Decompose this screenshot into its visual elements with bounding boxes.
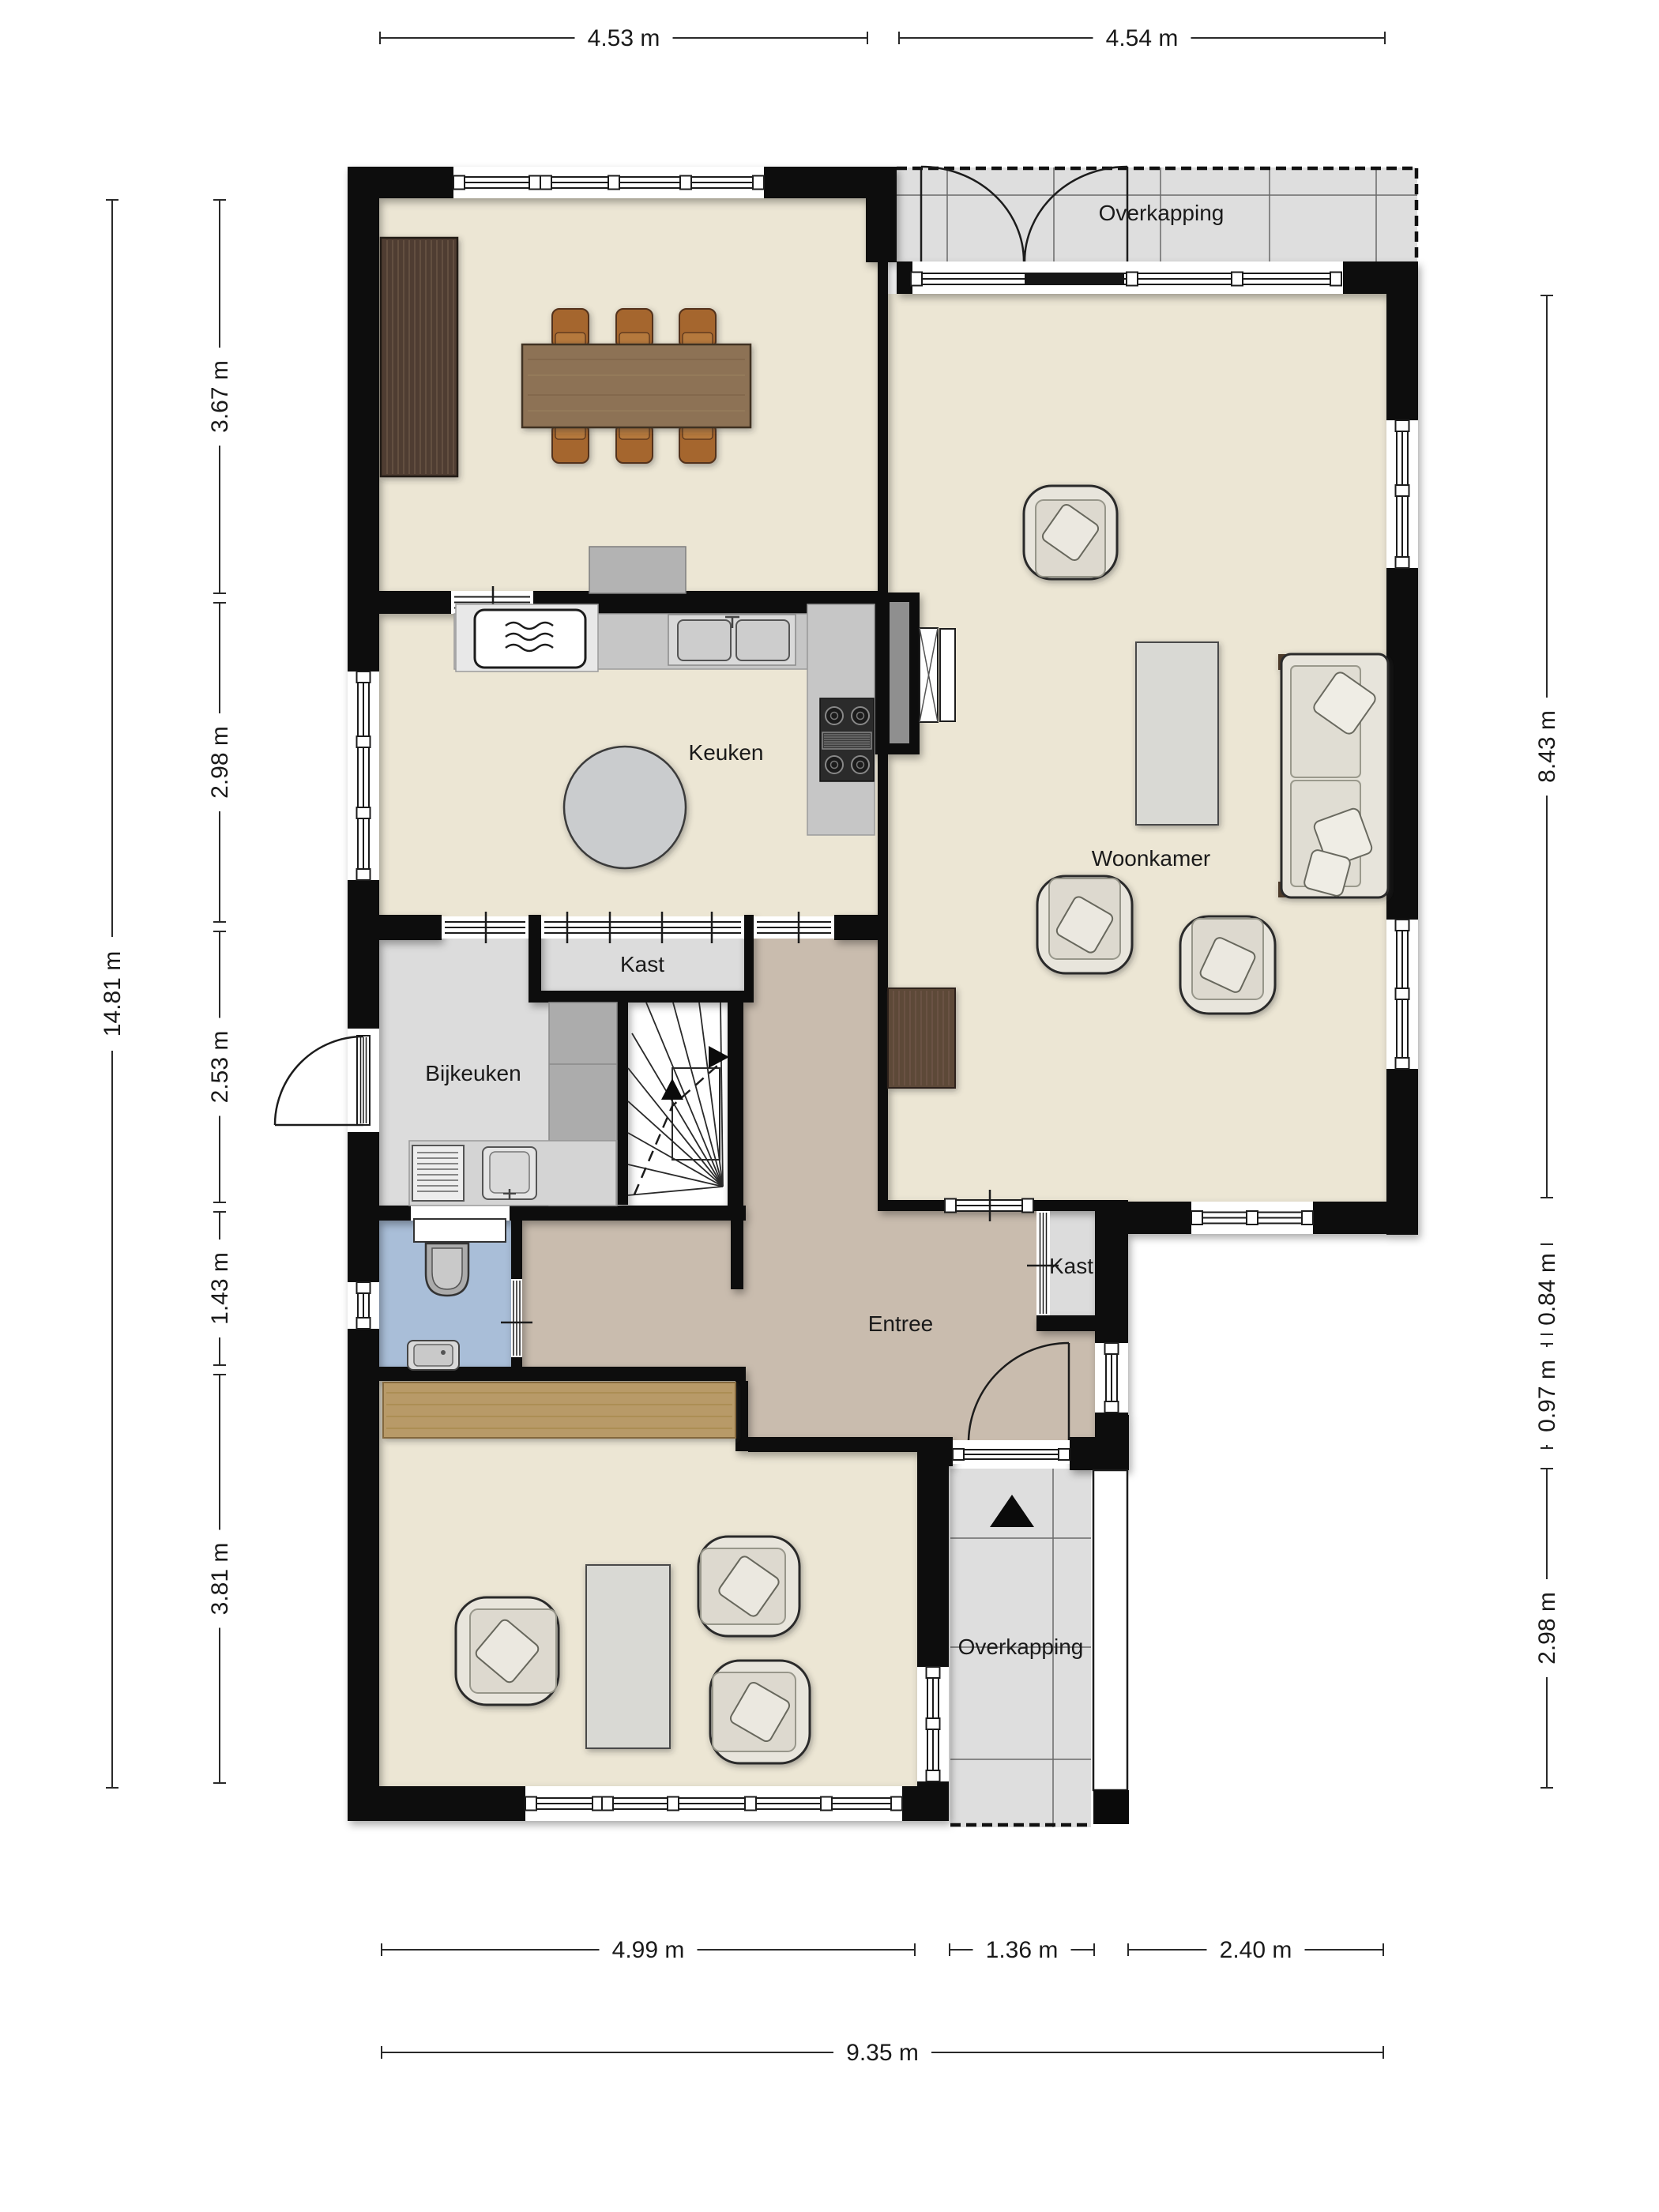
svg-text:2.98 m: 2.98 m — [207, 726, 233, 799]
svg-text:0.84 m: 0.84 m — [1534, 1253, 1560, 1326]
svg-text:14.81 m: 14.81 m — [100, 951, 126, 1036]
svg-text:3.67 m: 3.67 m — [207, 360, 233, 433]
svg-text:Bijkeuken: Bijkeuken — [425, 1061, 521, 1085]
svg-text:Kast: Kast — [1049, 1254, 1093, 1278]
svg-text:2.98 m: 2.98 m — [1534, 1592, 1560, 1665]
svg-text:1.36 m: 1.36 m — [986, 1937, 1059, 1963]
svg-text:Keuken: Keuken — [689, 740, 764, 765]
svg-text:2.53 m: 2.53 m — [207, 1031, 233, 1104]
svg-text:Overkapping: Overkapping — [1099, 201, 1224, 225]
svg-text:4.53 m: 4.53 m — [588, 25, 660, 51]
svg-text:4.99 m: 4.99 m — [612, 1937, 685, 1963]
svg-text:Overkapping: Overkapping — [958, 1635, 1084, 1659]
svg-text:2.40 m: 2.40 m — [1220, 1937, 1292, 1963]
svg-text:9.35 m: 9.35 m — [846, 2040, 919, 2066]
svg-text:3.81 m: 3.81 m — [207, 1543, 233, 1616]
svg-text:0.97 m: 0.97 m — [1534, 1360, 1560, 1432]
svg-text:4.54 m: 4.54 m — [1106, 25, 1179, 51]
svg-text:Entree: Entree — [868, 1311, 934, 1336]
svg-text:Woonkamer: Woonkamer — [1092, 846, 1210, 871]
svg-text:8.43 m: 8.43 m — [1534, 710, 1560, 783]
svg-text:1.43 m: 1.43 m — [207, 1252, 233, 1325]
svg-text:Kast: Kast — [620, 952, 664, 976]
